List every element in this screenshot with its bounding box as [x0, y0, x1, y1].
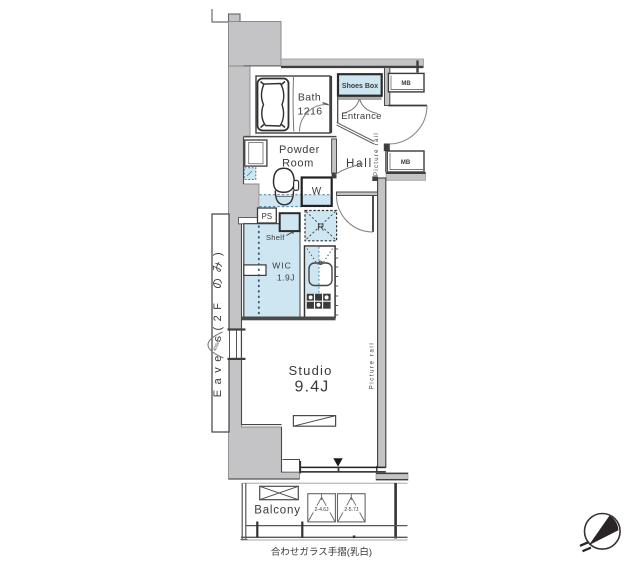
svg-text:WIC: WIC: [272, 261, 292, 271]
svg-text:Shelf: Shelf: [266, 233, 285, 242]
svg-text:PS: PS: [261, 212, 272, 221]
svg-text:Hall: Hall: [346, 158, 373, 170]
svg-text:R: R: [317, 223, 324, 234]
svg-text:合わせガラス手摺(乳白): 合わせガラス手摺(乳白): [271, 546, 372, 558]
svg-text:9.4J: 9.4J: [294, 379, 329, 396]
svg-text:Balcony: Balcony: [254, 505, 301, 517]
svg-text:W: W: [312, 186, 322, 197]
svg-text:Eave s(2F のみ): Eave s(2F のみ): [211, 247, 224, 397]
svg-text:2-4.6J: 2-4.6J: [315, 507, 329, 513]
svg-text:Bath: Bath: [298, 92, 321, 104]
svg-text:MB: MB: [401, 160, 411, 166]
svg-text:1216: 1216: [298, 106, 323, 118]
svg-text:1.9J: 1.9J: [277, 273, 295, 283]
svg-text:Powder: Powder: [279, 144, 320, 156]
svg-text:Shoes Box: Shoes Box: [342, 83, 378, 90]
svg-text:Studio: Studio: [288, 363, 332, 378]
svg-text:2-5.7J: 2-5.7J: [344, 507, 358, 513]
svg-text:Entrance: Entrance: [341, 111, 381, 122]
svg-text:MB: MB: [401, 81, 411, 87]
svg-text:Picture rail: Picture rail: [374, 132, 380, 176]
svg-text:Picture rail: Picture rail: [369, 342, 375, 390]
svg-text:Room: Room: [282, 158, 314, 170]
